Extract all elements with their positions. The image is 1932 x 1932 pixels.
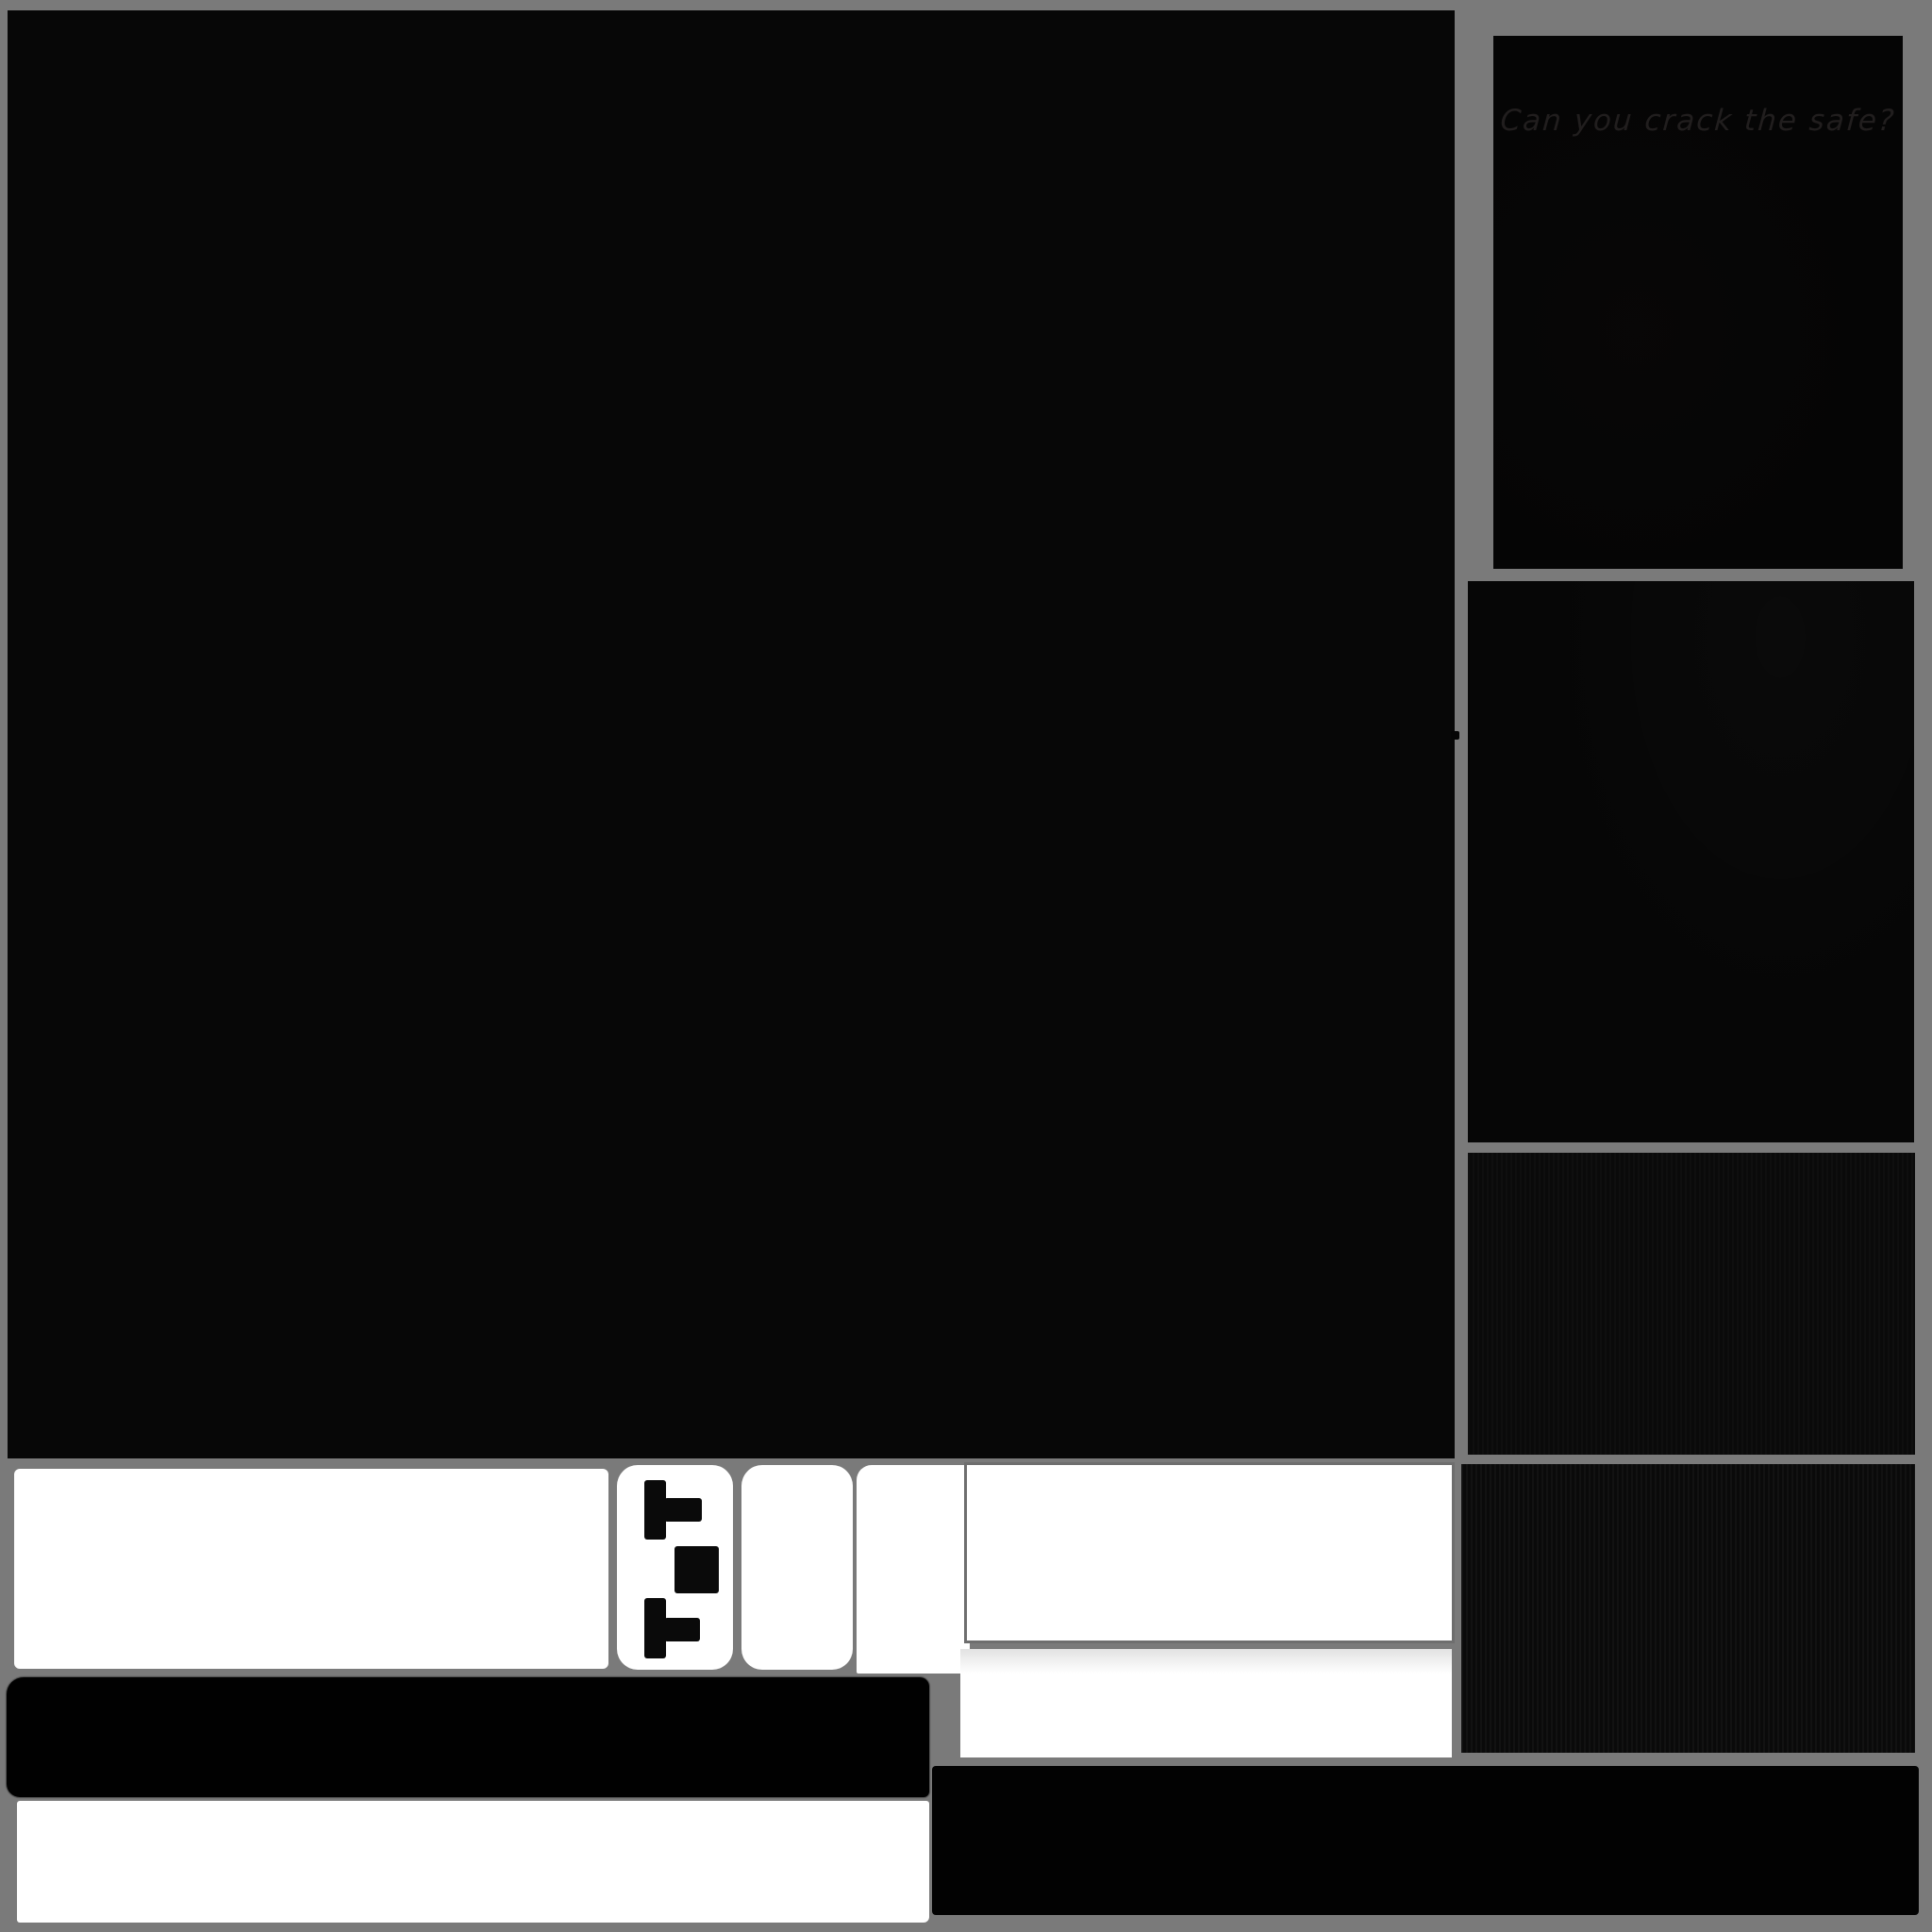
small-white-card[interactable]: [857, 1465, 970, 1674]
edge-dash-mark: [1451, 731, 1459, 740]
t-piece-bottom-icon: [644, 1598, 666, 1658]
dark-image-panel-3[interactable]: [1468, 1153, 1915, 1455]
t-piece-bottom-arm-icon: [664, 1618, 700, 1641]
black-bar-right[interactable]: [932, 1766, 1919, 1915]
riddle-text: Can you crack the safe?: [1492, 104, 1905, 138]
left-white-card[interactable]: [14, 1469, 608, 1669]
lower-white-panel[interactable]: [960, 1649, 1452, 1757]
dark-image-panel-4[interactable]: [1461, 1464, 1915, 1753]
whiteboard-canvas: { "canvas": { "background_color": "#7a7a…: [0, 0, 1932, 1932]
t-piece-top-arm-icon: [664, 1498, 702, 1522]
bordered-white-panel[interactable]: [964, 1462, 1455, 1643]
riddle-image-panel[interactable]: Can you crack the safe?: [1493, 36, 1903, 569]
dark-image-panel-2[interactable]: [1468, 581, 1914, 1142]
main-image-panel[interactable]: [8, 10, 1455, 1458]
white-bar-left[interactable]: [17, 1801, 929, 1923]
t-piece-top-icon: [644, 1480, 666, 1540]
square-piece-icon: [675, 1546, 719, 1593]
black-bar-left[interactable]: [7, 1677, 929, 1797]
empty-pill-card[interactable]: [741, 1465, 853, 1670]
